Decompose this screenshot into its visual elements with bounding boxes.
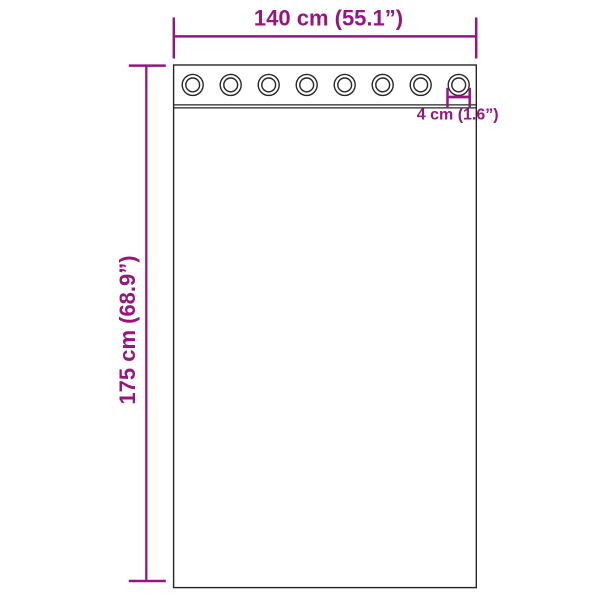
svg-text:175 cm (68.9”): 175 cm (68.9”) (115, 255, 140, 404)
svg-text:140 cm (55.1”): 140 cm (55.1”) (254, 6, 403, 31)
svg-text:4 cm (1.6”): 4 cm (1.6”) (417, 107, 499, 124)
